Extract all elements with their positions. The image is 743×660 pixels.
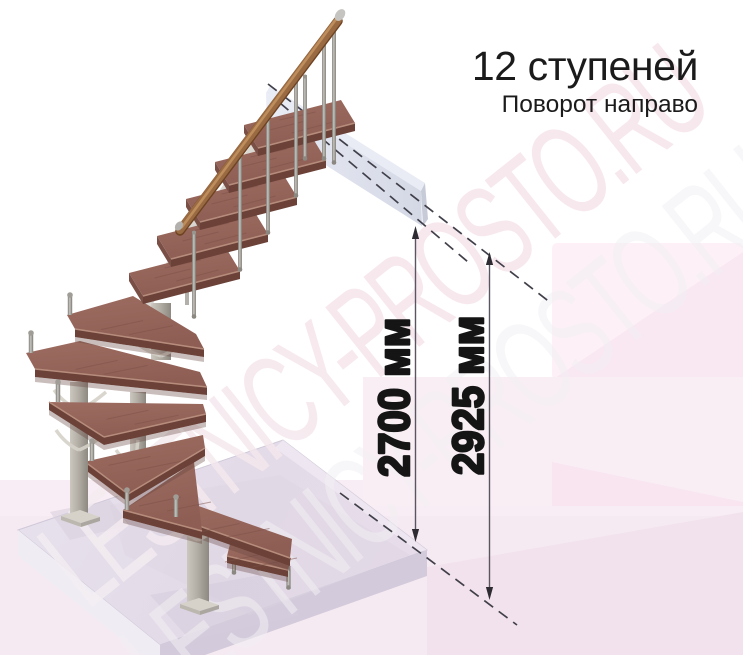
svg-text:2700 мм: 2700 мм [369,318,418,477]
svg-text:Поворот направо: Поворот направо [502,91,698,118]
svg-text:2925 мм: 2925 мм [443,316,492,475]
svg-text:12 ступеней: 12 ступеней [472,43,698,89]
